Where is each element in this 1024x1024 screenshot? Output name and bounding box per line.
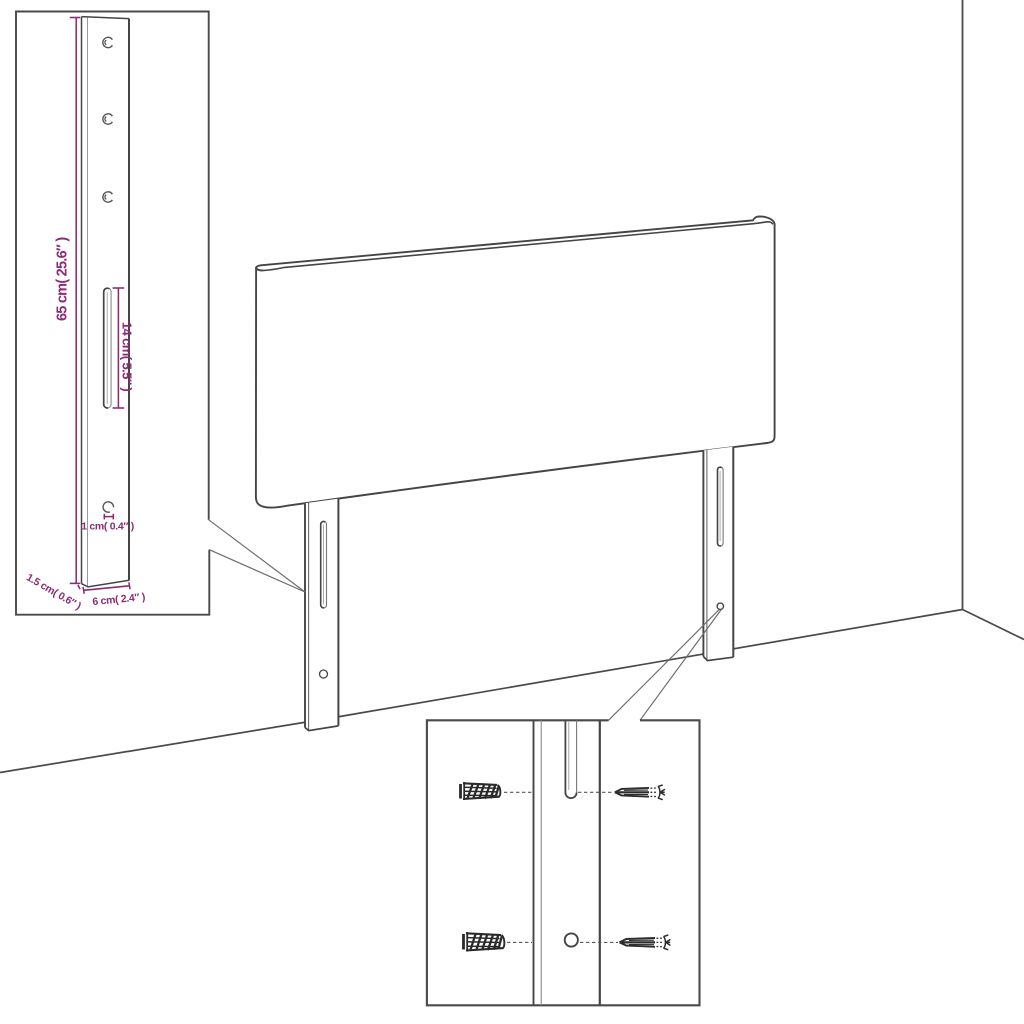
svg-text:6 cm( 2.4″ ): 6 cm( 2.4″ ) [92, 591, 146, 608]
svg-text:1 cm( 0.4″ ): 1 cm( 0.4″ ) [81, 521, 134, 533]
svg-text:65 cm( 25.6″ ): 65 cm( 25.6″ ) [55, 237, 71, 321]
svg-text:1.5 cm( 0.6″ ): 1.5 cm( 0.6″ ) [24, 571, 83, 612]
svg-text:14 cm( 5.5″ ): 14 cm( 5.5″ ) [119, 322, 134, 392]
